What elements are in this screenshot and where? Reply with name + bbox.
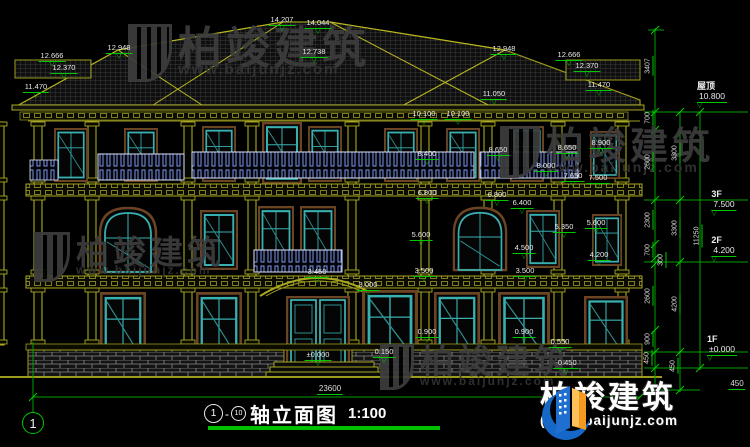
- drawing-title: 1 - 10 轴立面图 1:100: [204, 399, 386, 428]
- title-scale: 1:100: [348, 405, 386, 422]
- brand-building-icon: [540, 382, 596, 442]
- axis-range-dash: -: [225, 407, 229, 421]
- third-floor-balustrade: [26, 152, 642, 196]
- cad-elevation-screenshot: 柏竣建筑 www.baijunjz.com 柏竣建筑 www.baijunjz.…: [0, 0, 750, 447]
- brand-logo: 柏竣建筑 (www.baijunjz.com: [540, 382, 678, 428]
- roof: [15, 22, 640, 108]
- axis-end-bubble: 10: [231, 406, 246, 421]
- title-underline: [208, 426, 440, 430]
- eave-cornice: [12, 105, 644, 121]
- axis-start-bubble: 1: [204, 404, 223, 423]
- second-floor-windows: [26, 207, 642, 288]
- axis-bubble-1: 1: [22, 412, 44, 434]
- title-text: 轴立面图: [250, 399, 338, 428]
